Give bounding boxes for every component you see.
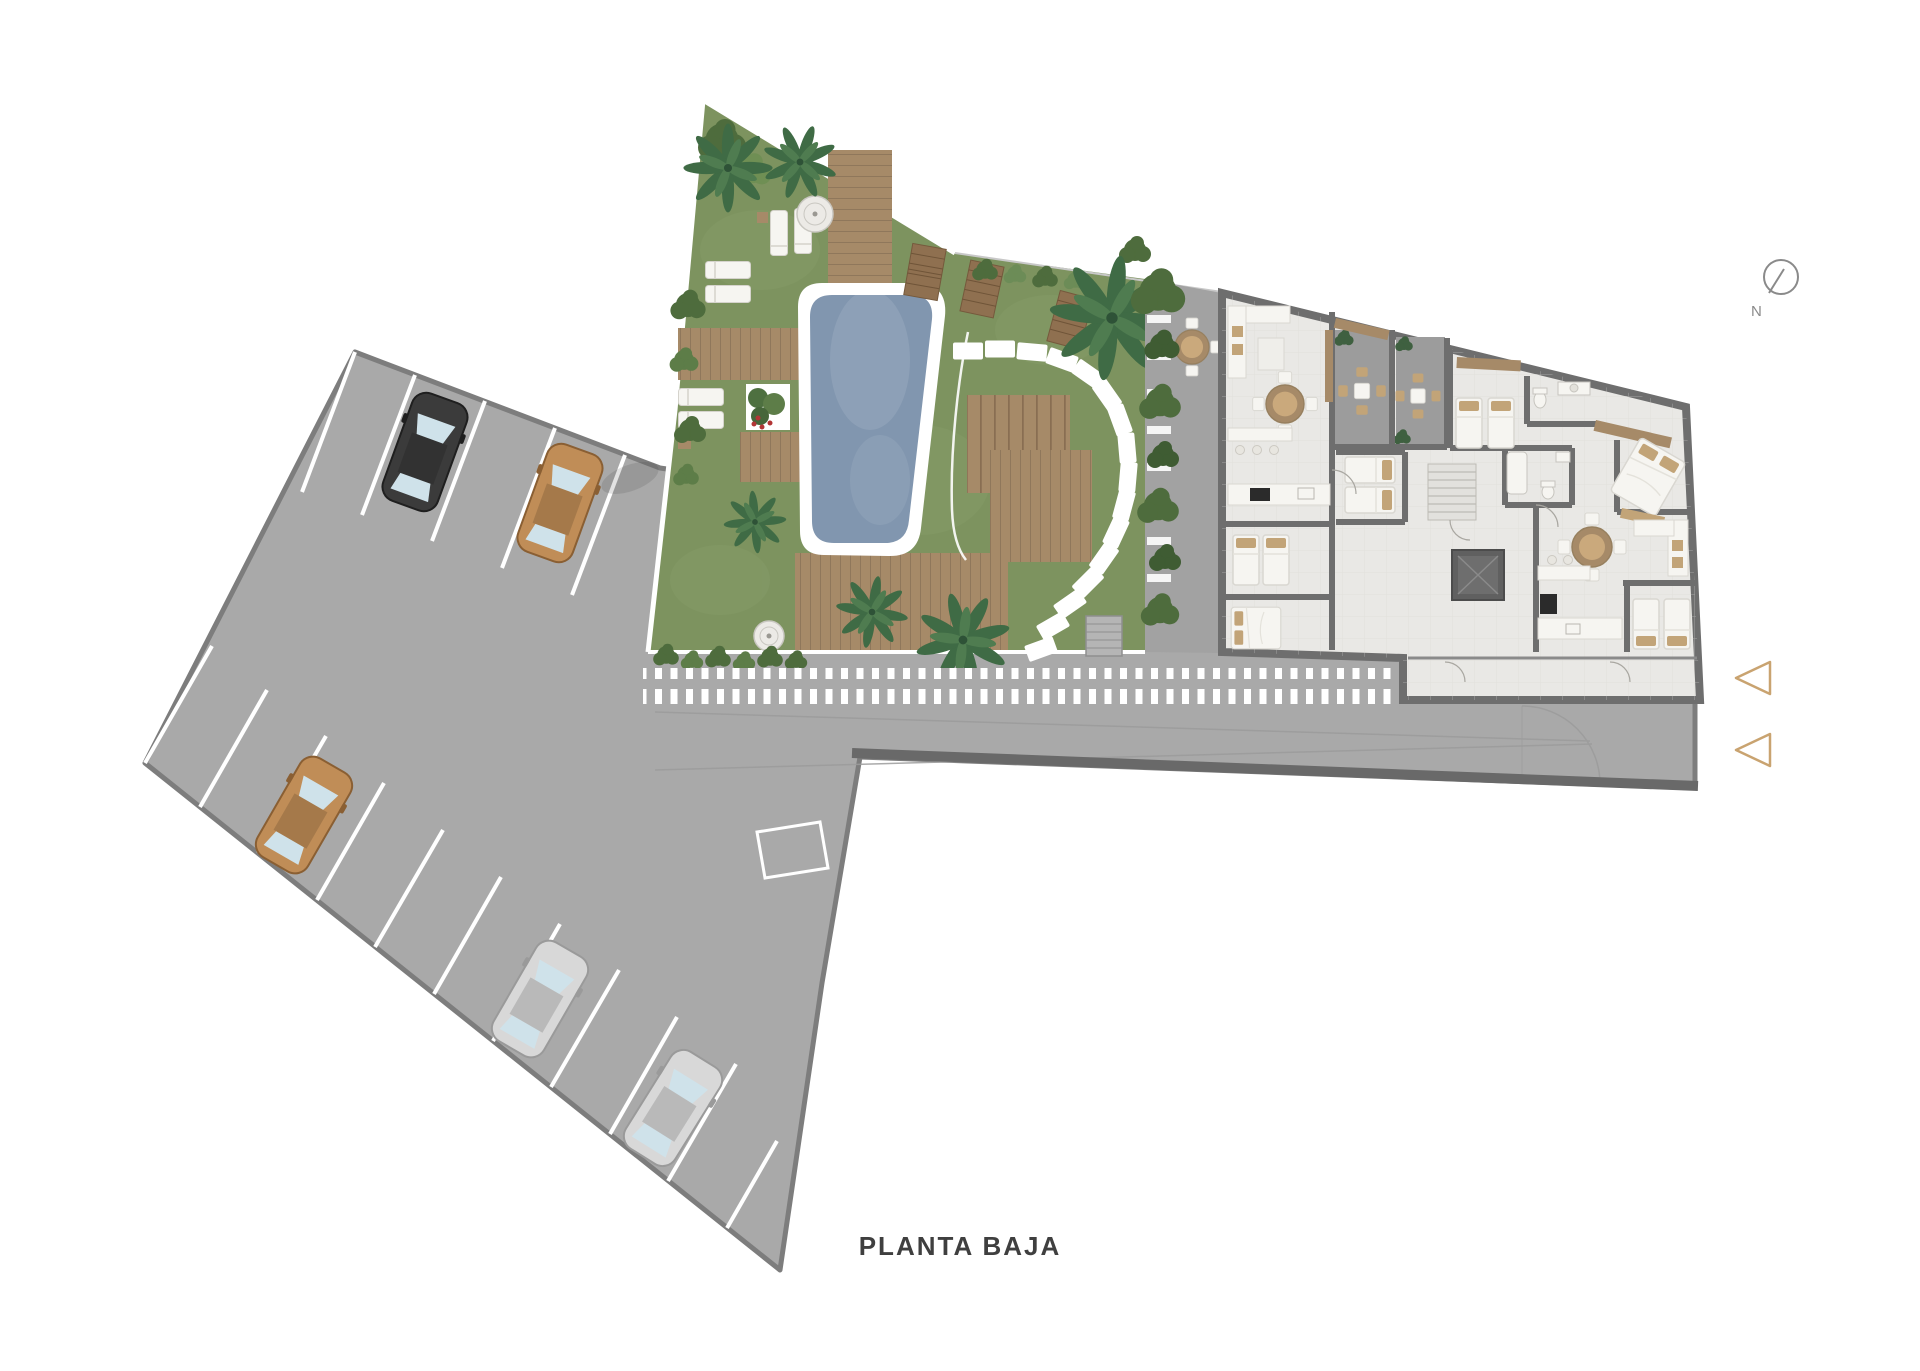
floor-plan-canvas: N PLANTA BAJA	[0, 0, 1920, 1371]
coffee-table	[1258, 338, 1284, 370]
palm-icon	[683, 123, 772, 212]
lounger	[679, 389, 724, 406]
bed	[1456, 398, 1482, 448]
compass-circle	[1764, 260, 1798, 294]
site-plan-svg: N	[0, 0, 1920, 1371]
north-label: N	[1751, 303, 1762, 320]
patio-1	[1334, 330, 1390, 445]
bed	[1345, 457, 1395, 483]
entry-marker-2	[1736, 734, 1770, 766]
entry-marker-1	[1736, 662, 1770, 694]
bed	[1233, 535, 1259, 585]
planter	[746, 384, 790, 430]
building-area	[1222, 293, 1700, 700]
garden-stairs	[1086, 616, 1122, 656]
bed	[1345, 487, 1395, 513]
bed	[1633, 599, 1659, 649]
deck-top	[828, 150, 892, 287]
lounger	[706, 262, 751, 279]
lounger	[706, 286, 751, 303]
elevator	[1452, 550, 1504, 600]
compass: N	[1751, 260, 1798, 320]
deck-slab-a	[678, 328, 814, 380]
garden-area	[648, 100, 1222, 699]
bed	[1488, 398, 1514, 448]
kitchen-counter	[1228, 484, 1330, 505]
bed	[1231, 607, 1281, 649]
bed	[1664, 599, 1690, 649]
patio-2	[1393, 336, 1445, 446]
pergola-deck-2	[990, 450, 1092, 562]
stove	[1250, 488, 1270, 501]
kitchen-island	[1538, 566, 1590, 580]
striped-walkway	[643, 668, 1400, 704]
entry-markers	[1736, 662, 1770, 766]
fridge	[1540, 594, 1557, 614]
kitchen-island	[1228, 428, 1292, 441]
parasol-icon	[797, 196, 833, 232]
lounger	[771, 211, 788, 256]
bed	[1263, 535, 1289, 585]
plan-title: PLANTA BAJA	[0, 1231, 1920, 1262]
stairs	[1428, 464, 1476, 520]
compass-needle	[1769, 269, 1784, 293]
